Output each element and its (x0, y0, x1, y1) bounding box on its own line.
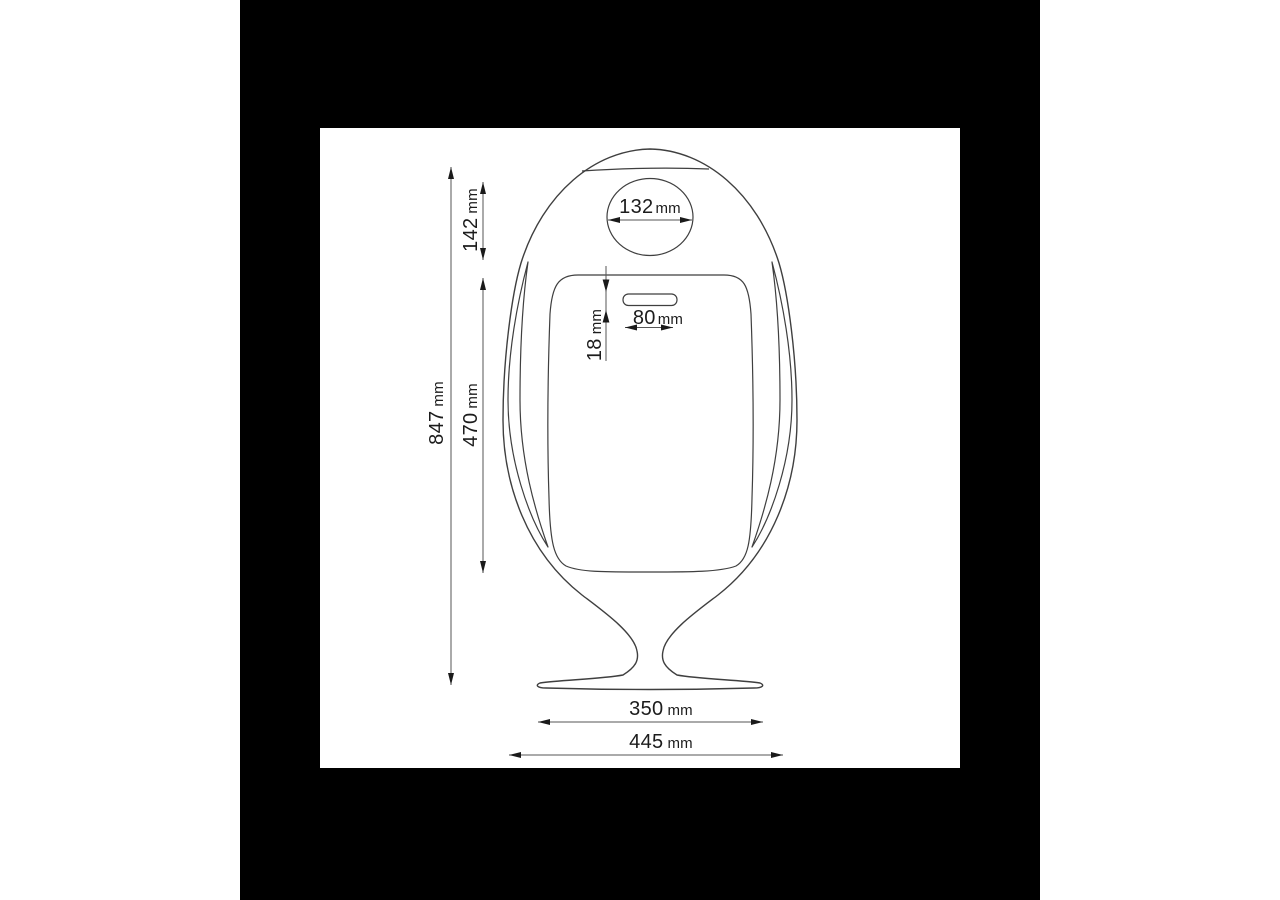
drawing-canvas: 847mm 142mm 470mm 18mm 132mm 80mm (320, 128, 960, 768)
dim-label-door-height: 470mm (460, 383, 482, 447)
artwork-panel: 847mm 142mm 470mm 18mm 132mm 80mm (240, 0, 1040, 900)
dim-value: 18 (584, 338, 606, 361)
dim-unit: mm (667, 735, 692, 752)
slot-inset-arrow-down (603, 280, 610, 293)
dim-label-slot-inset: 18mm (584, 309, 606, 361)
left-side-seam (508, 262, 548, 547)
technical-drawing: 847mm 142mm 470mm 18mm 132mm 80mm (320, 128, 960, 768)
dim-label-overall-height: 847mm (426, 381, 448, 445)
dim-unit: mm (464, 188, 481, 213)
dim-unit: mm (655, 200, 680, 217)
dim-value: 350 (629, 698, 663, 720)
dim-value: 445 (629, 731, 663, 753)
dim-label-lid-diameter: 132mm (619, 196, 681, 218)
dim-unit: mm (588, 309, 605, 334)
dim-value: 847 (426, 411, 448, 445)
dim-unit: mm (667, 702, 692, 719)
right-side-seam (752, 262, 792, 547)
dim-label-lid-section: 142mm (460, 188, 482, 252)
dim-label-overall-width: 445mm (629, 731, 693, 753)
dim-value: 470 (460, 413, 482, 447)
page-background: 847mm 142mm 470mm 18mm 132mm 80mm (0, 0, 1280, 900)
dim-unit: mm (658, 311, 683, 328)
dim-label-base-width: 350mm (629, 698, 693, 720)
dim-unit: mm (464, 383, 481, 408)
dim-value: 142 (460, 218, 482, 252)
handle-slot (623, 294, 677, 306)
dim-unit: mm (430, 381, 447, 406)
dim-value: 80 (633, 307, 656, 329)
dim-value: 132 (619, 196, 653, 218)
dim-label-slot-width: 80mm (633, 307, 683, 329)
lid-seam-line (582, 168, 709, 171)
